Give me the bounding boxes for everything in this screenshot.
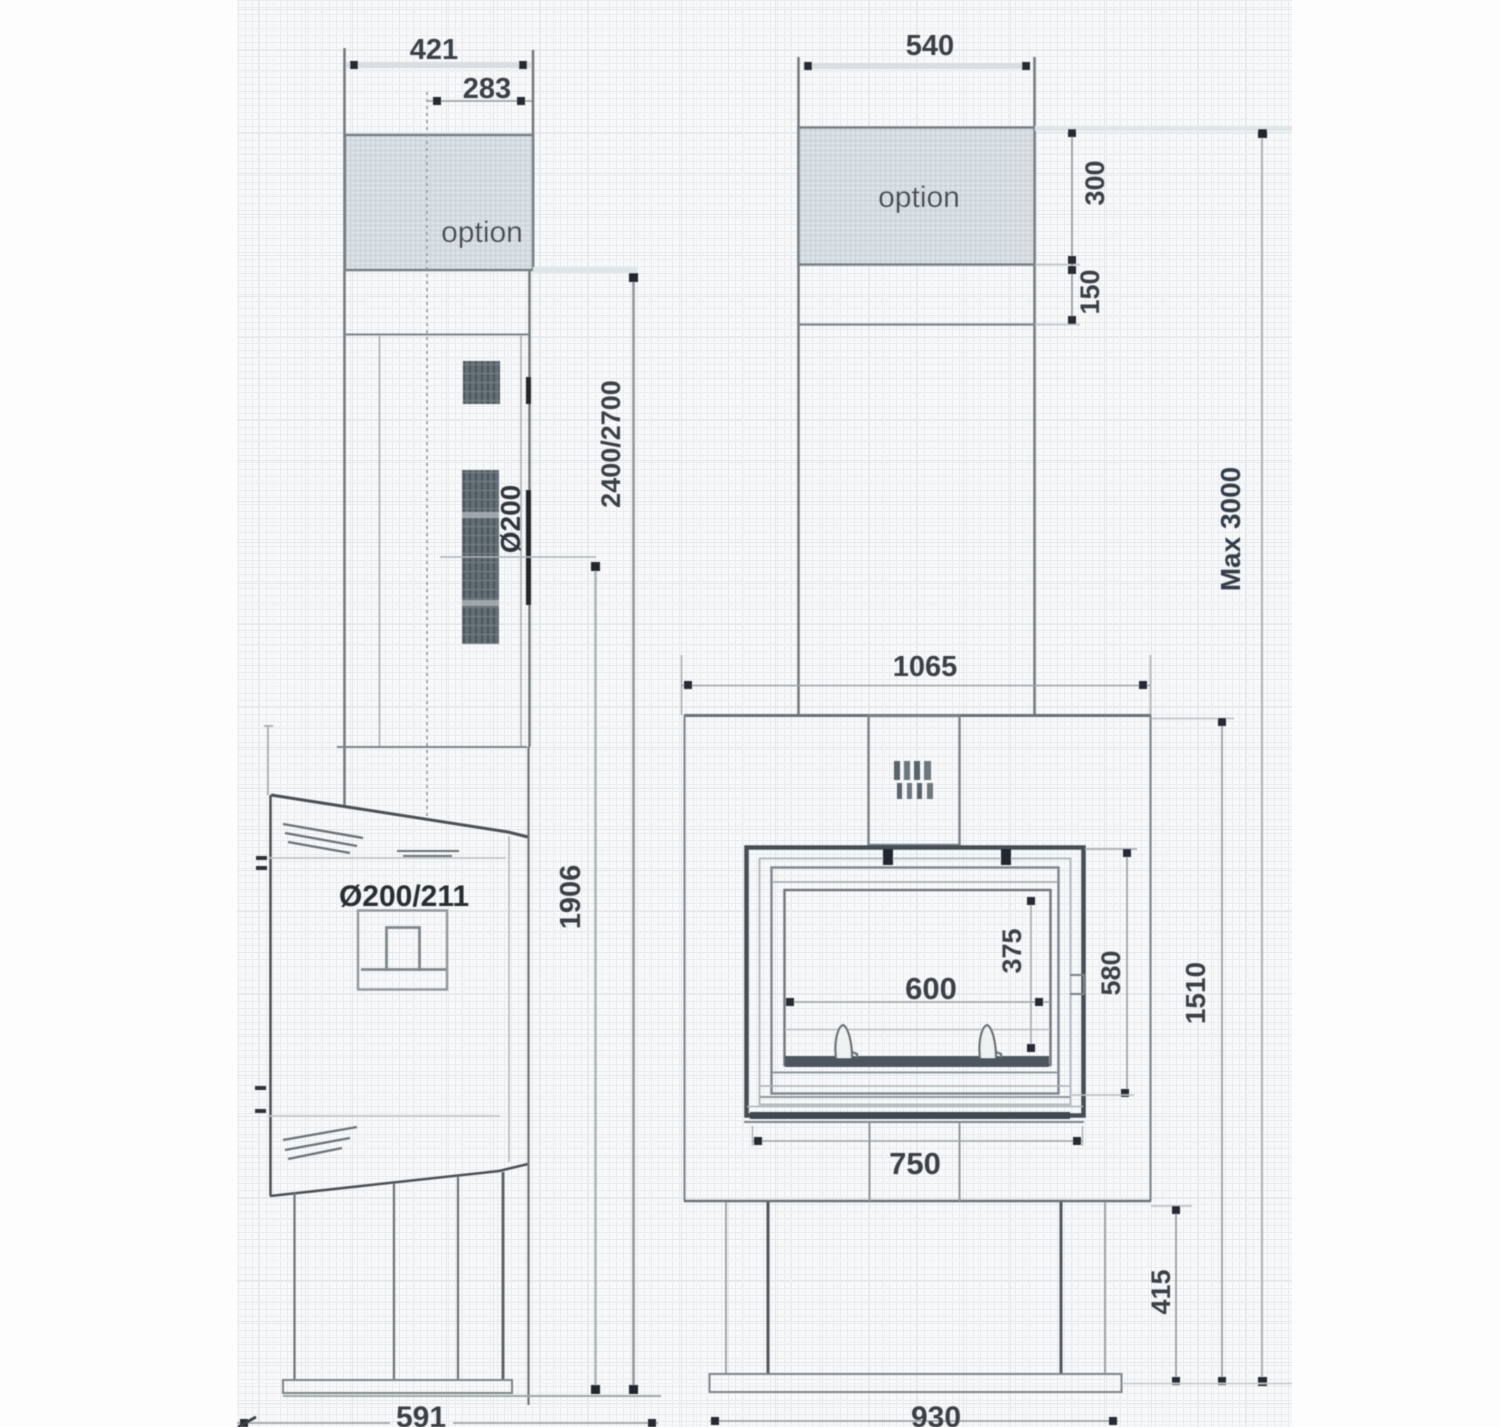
svg-text:930: 930 (911, 1401, 961, 1427)
svg-text:Ø200: Ø200 (495, 485, 526, 554)
svg-text:591: 591 (396, 1401, 446, 1427)
svg-text:283: 283 (463, 73, 511, 105)
svg-text:Ø200/211: Ø200/211 (339, 880, 469, 913)
svg-text:540: 540 (906, 30, 954, 62)
svg-text:600: 600 (905, 971, 957, 1006)
svg-text:421: 421 (410, 34, 458, 66)
svg-text:Max 3000: Max 3000 (1215, 467, 1246, 592)
svg-text:option: option (441, 216, 523, 249)
svg-text:150: 150 (1075, 269, 1105, 314)
svg-text:1510: 1510 (1180, 962, 1211, 1024)
svg-text:375: 375 (997, 928, 1027, 973)
svg-text:750: 750 (889, 1146, 941, 1181)
svg-text:1906: 1906 (555, 865, 587, 930)
svg-text:415: 415 (1146, 1269, 1176, 1314)
svg-text:1065: 1065 (893, 651, 958, 683)
svg-text:580: 580 (1096, 950, 1126, 995)
svg-text:300: 300 (1080, 160, 1110, 205)
svg-text:option: option (878, 181, 960, 214)
svg-text:2400/2700: 2400/2700 (596, 380, 626, 508)
